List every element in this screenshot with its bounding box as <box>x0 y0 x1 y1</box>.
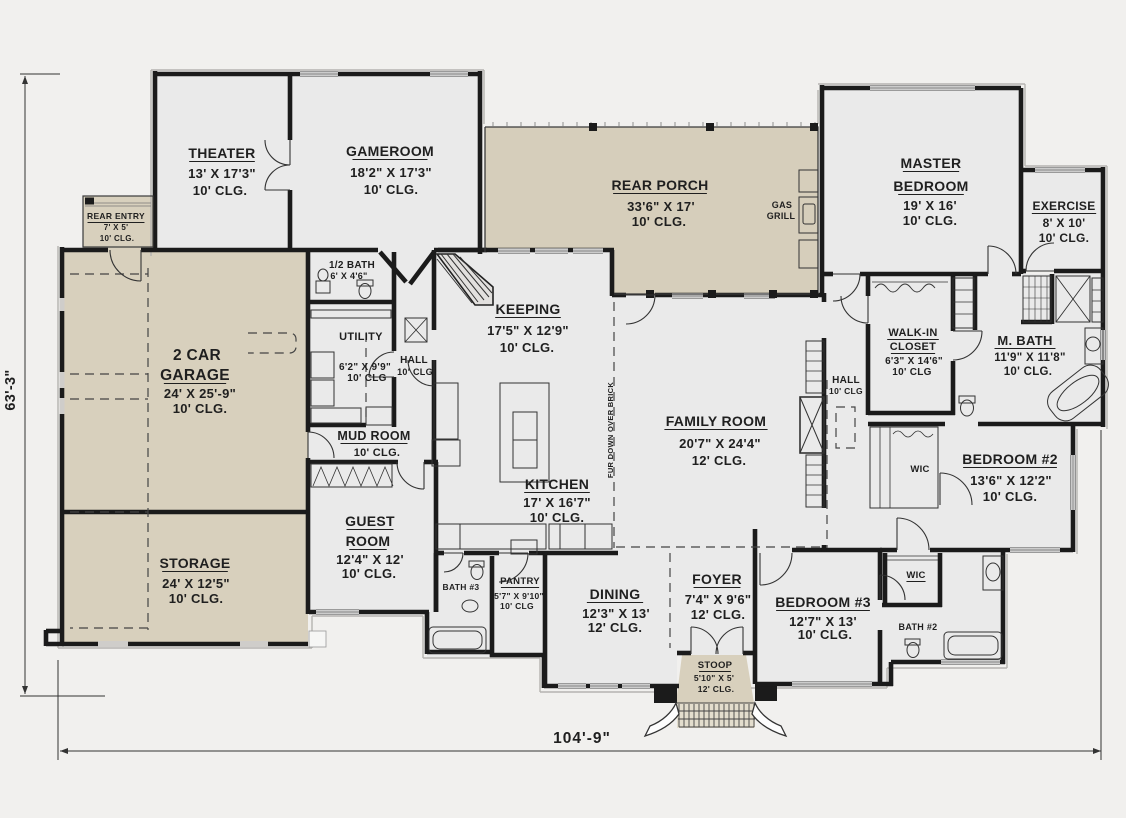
svg-text:13' X 17'3": 13' X 17'3" <box>188 166 256 181</box>
svg-text:10' CLG.: 10' CLG. <box>354 447 401 459</box>
svg-text:KEEPING: KEEPING <box>495 301 560 317</box>
svg-text:10' CLG.: 10' CLG. <box>798 627 853 642</box>
svg-text:2 CAR: 2 CAR <box>173 347 221 364</box>
svg-text:10' CLG: 10' CLG <box>500 601 534 611</box>
svg-text:HALL: HALL <box>400 355 428 366</box>
svg-text:10' CLG.: 10' CLG. <box>169 591 224 606</box>
svg-text:BATH #3: BATH #3 <box>443 582 480 592</box>
svg-text:6' X 4'6": 6' X 4'6" <box>330 271 367 281</box>
svg-text:10' CLG.: 10' CLG. <box>632 214 687 229</box>
svg-text:GRILL: GRILL <box>767 211 796 221</box>
svg-text:11'9" X 11'8": 11'9" X 11'8" <box>994 352 1065 364</box>
svg-text:UTILITY: UTILITY <box>339 331 383 343</box>
svg-text:ROOM: ROOM <box>346 533 391 549</box>
svg-text:GARAGE: GARAGE <box>160 367 230 384</box>
svg-text:KITCHEN: KITCHEN <box>525 476 589 492</box>
svg-text:FOYER: FOYER <box>692 571 742 587</box>
svg-text:10' CLG.: 10' CLG. <box>193 183 248 198</box>
svg-text:20'7" X 24'4": 20'7" X 24'4" <box>679 436 761 451</box>
svg-text:10' CLG.: 10' CLG. <box>100 234 135 243</box>
svg-text:WIC: WIC <box>906 570 925 581</box>
svg-text:6'3" X 14'6": 6'3" X 14'6" <box>885 356 943 367</box>
svg-text:10' CLG: 10' CLG <box>347 373 387 384</box>
svg-text:10' CLG.: 10' CLG. <box>903 213 958 228</box>
svg-text:THEATER: THEATER <box>188 145 255 161</box>
svg-text:5'7" X 9'10": 5'7" X 9'10" <box>494 591 544 601</box>
svg-text:REAR ENTRY: REAR ENTRY <box>87 211 145 221</box>
svg-text:7' X 5': 7' X 5' <box>104 223 129 232</box>
svg-text:1/2 BATH: 1/2 BATH <box>329 260 375 271</box>
svg-text:5'10" X 5': 5'10" X 5' <box>694 673 734 683</box>
svg-text:63'-3": 63'-3" <box>3 369 19 410</box>
svg-text:BATH #2: BATH #2 <box>899 622 938 632</box>
svg-text:STOOP: STOOP <box>698 660 733 671</box>
svg-text:GAMEROOM: GAMEROOM <box>346 143 434 159</box>
svg-text:10' CLG.: 10' CLG. <box>342 566 397 581</box>
svg-text:EXERCISE: EXERCISE <box>1032 199 1095 213</box>
svg-text:17' X 16'7": 17' X 16'7" <box>523 495 591 510</box>
svg-text:BEDROOM #3: BEDROOM #3 <box>775 594 871 610</box>
svg-text:12' CLG.: 12' CLG. <box>698 684 735 694</box>
svg-text:33'6" X 17': 33'6" X 17' <box>627 199 695 214</box>
svg-text:STORAGE: STORAGE <box>159 555 230 571</box>
svg-text:17'5" X 12'9": 17'5" X 12'9" <box>487 323 569 338</box>
svg-text:13'6" X 12'2": 13'6" X 12'2" <box>970 473 1052 488</box>
svg-text:8' X 10': 8' X 10' <box>1043 216 1086 230</box>
svg-text:7'4" X 9'6": 7'4" X 9'6" <box>685 592 752 607</box>
svg-text:24' X 25'-9": 24' X 25'-9" <box>164 386 236 401</box>
svg-text:BEDROOM: BEDROOM <box>893 178 968 194</box>
svg-text:19' X 16': 19' X 16' <box>903 198 957 213</box>
svg-text:10' CLG.: 10' CLG. <box>173 401 228 416</box>
svg-text:12'3" X 13': 12'3" X 13' <box>582 606 650 621</box>
svg-text:10' CLG.: 10' CLG. <box>500 340 555 355</box>
svg-text:DINING: DINING <box>590 586 641 602</box>
svg-text:18'2" X 17'3": 18'2" X 17'3" <box>350 165 432 180</box>
svg-text:12'4" X 12': 12'4" X 12' <box>336 552 404 567</box>
svg-text:FUR DOWN OVER BRICK: FUR DOWN OVER BRICK <box>606 382 615 478</box>
svg-text:BEDROOM #2: BEDROOM #2 <box>962 451 1058 467</box>
svg-text:12' CLG.: 12' CLG. <box>691 607 746 622</box>
svg-text:104'-9": 104'-9" <box>553 730 611 747</box>
svg-text:12' CLG.: 12' CLG. <box>588 620 643 635</box>
svg-text:10' CLG.: 10' CLG. <box>1004 366 1053 378</box>
svg-text:24' X 12'5": 24' X 12'5" <box>162 576 230 591</box>
svg-text:HALL: HALL <box>832 375 860 386</box>
svg-text:10' CLG.: 10' CLG. <box>530 510 585 525</box>
svg-text:PANTRY: PANTRY <box>500 576 540 587</box>
svg-text:10' CLG: 10' CLG <box>829 386 863 396</box>
svg-text:GUEST: GUEST <box>345 513 395 529</box>
svg-text:12' CLG.: 12' CLG. <box>692 453 747 468</box>
svg-text:10' CLG.: 10' CLG. <box>1039 231 1090 245</box>
svg-text:REAR PORCH: REAR PORCH <box>611 177 708 193</box>
svg-text:6'2" X 9'9": 6'2" X 9'9" <box>339 362 391 373</box>
svg-text:10' CLG.: 10' CLG. <box>364 182 419 197</box>
svg-text:10' CLG.: 10' CLG. <box>983 489 1038 504</box>
svg-text:10' CLG: 10' CLG <box>397 367 433 377</box>
svg-text:WALK-IN: WALK-IN <box>888 327 937 339</box>
svg-text:MUD ROOM: MUD ROOM <box>337 429 410 443</box>
svg-text:10' CLG: 10' CLG <box>892 367 932 378</box>
svg-text:WIC: WIC <box>910 464 929 475</box>
svg-text:FAMILY ROOM: FAMILY ROOM <box>666 413 767 429</box>
svg-text:MASTER: MASTER <box>901 155 962 171</box>
svg-text:M. BATH: M. BATH <box>997 333 1052 348</box>
svg-text:CLOSET: CLOSET <box>890 341 936 353</box>
svg-text:GAS: GAS <box>772 200 792 210</box>
